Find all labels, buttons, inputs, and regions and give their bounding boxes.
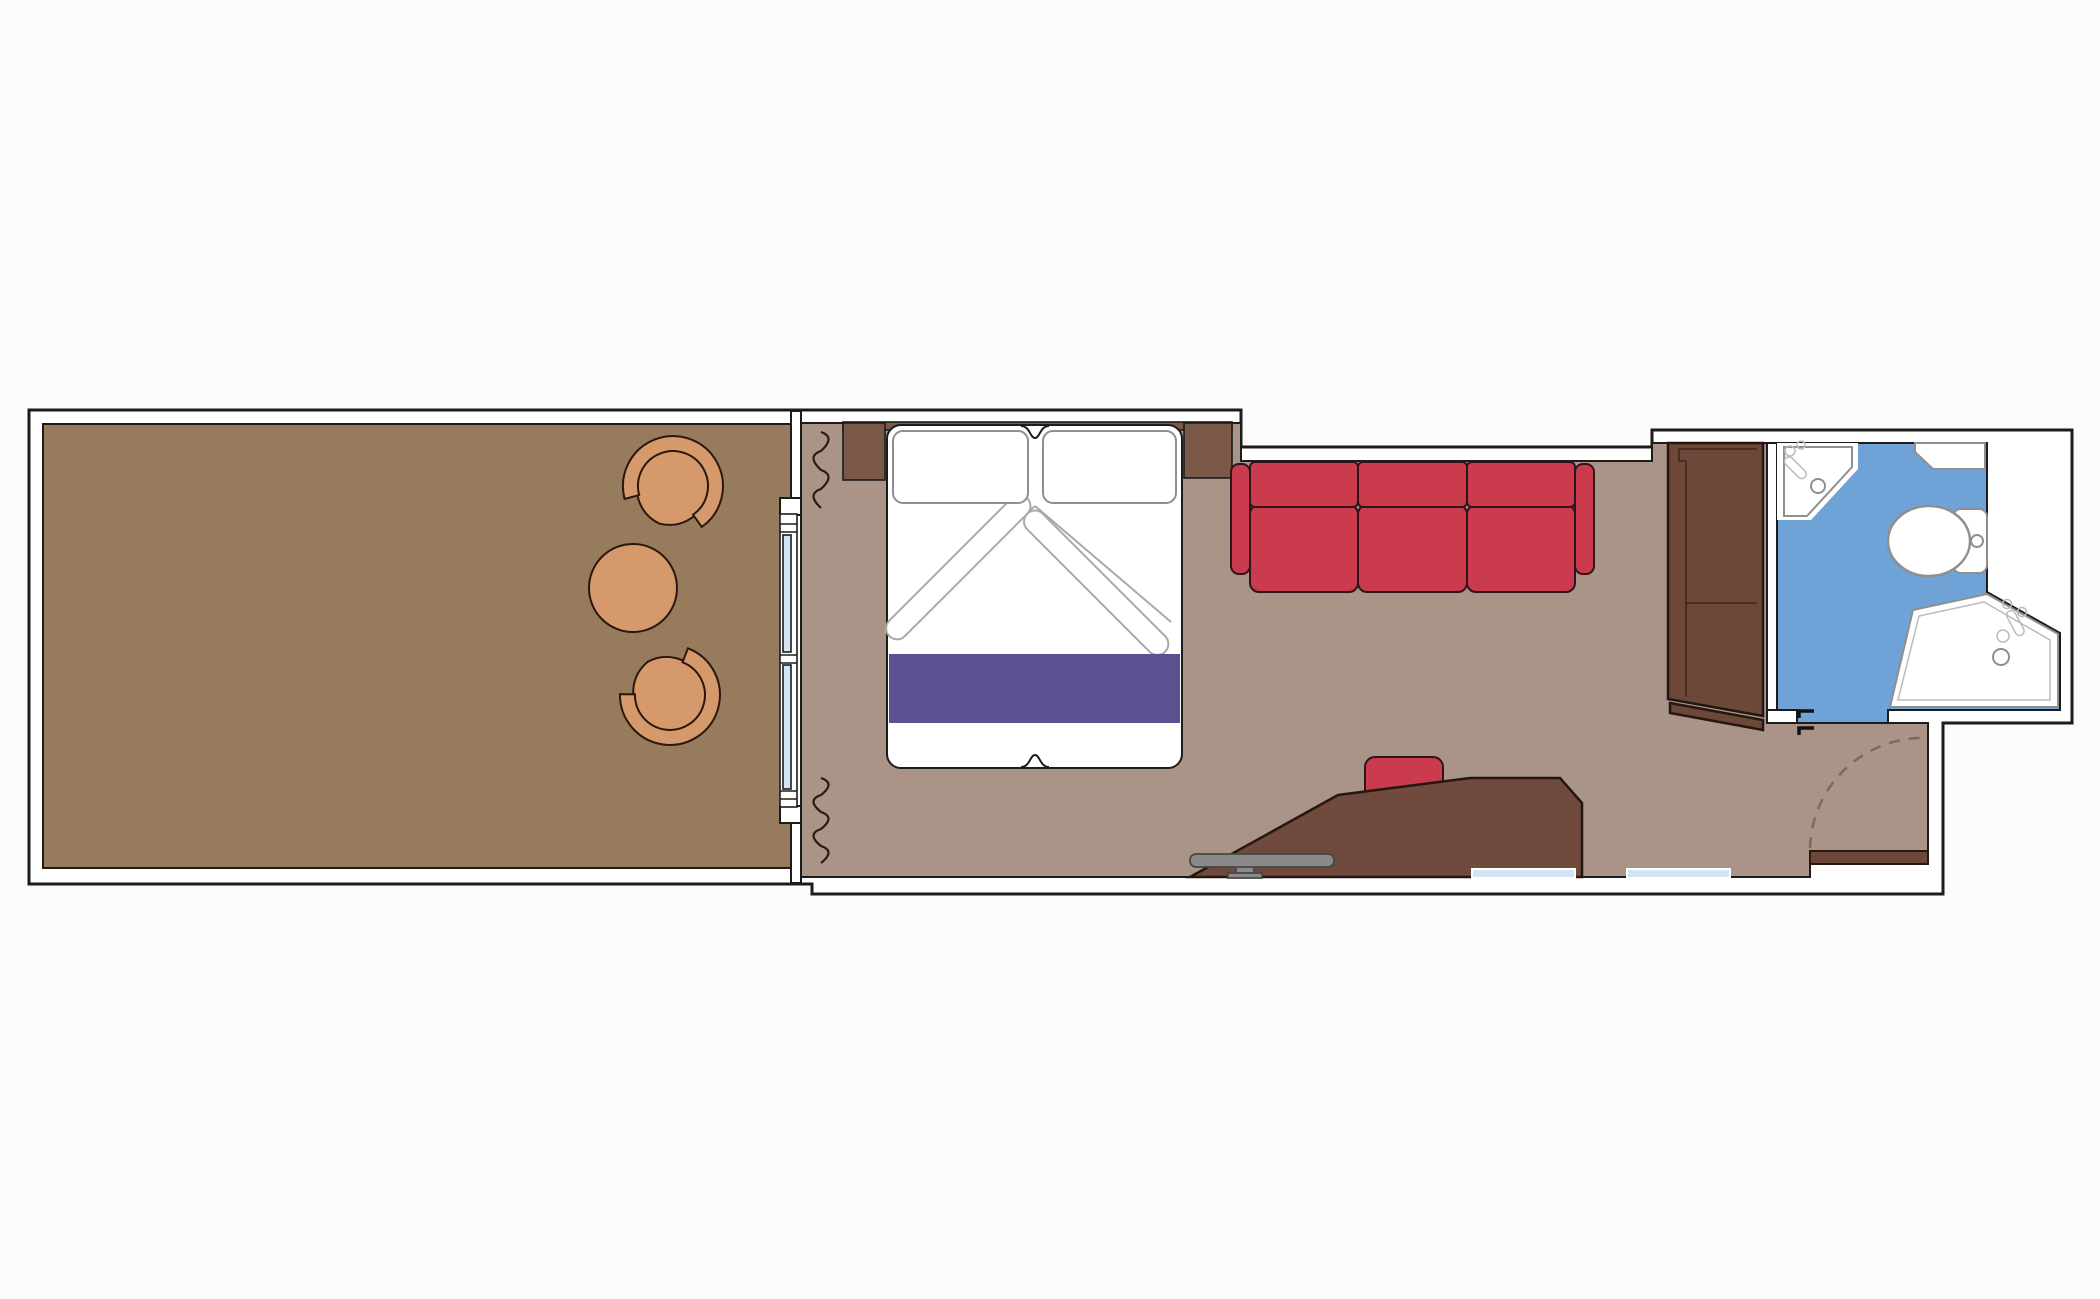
sofa-back-cushion xyxy=(1358,462,1467,507)
wardrobe-body xyxy=(1668,443,1763,716)
bed-runner xyxy=(889,654,1180,723)
sofa-back-cushion xyxy=(1250,462,1358,507)
sofa-back-cushion xyxy=(1467,462,1575,507)
sofa xyxy=(1231,462,1594,592)
sofa-armrest-right xyxy=(1575,464,1594,574)
stool-base xyxy=(1228,873,1262,878)
nightstand-left xyxy=(843,423,885,480)
wardrobe xyxy=(1668,443,1763,730)
toilet xyxy=(1888,506,1987,576)
floor-strip xyxy=(1472,869,1575,878)
bathroom-left-wall xyxy=(1767,443,1777,710)
pillow-left xyxy=(893,431,1028,503)
entrance-door xyxy=(1810,851,1928,864)
sofa-armrest-left xyxy=(1231,464,1250,574)
glass-pane-lower xyxy=(783,665,791,789)
sofa-seat-cushion xyxy=(1250,505,1358,592)
stool-seat xyxy=(1190,854,1334,867)
floor-strip xyxy=(1627,869,1730,878)
partition-wall-top xyxy=(791,411,801,500)
toilet-bowl xyxy=(1888,506,1970,576)
glass-pane-upper xyxy=(783,535,791,652)
nightstand-right xyxy=(1184,423,1232,478)
sofa-seat-cushion xyxy=(1467,505,1575,592)
floor-plan xyxy=(0,0,2100,1299)
balcony-table xyxy=(589,544,677,632)
window-jamb-bottom xyxy=(780,806,801,823)
double-bed xyxy=(882,425,1182,768)
partition-wall-bottom xyxy=(791,823,801,883)
window-jamb-top xyxy=(780,498,801,515)
sofa-seat-cushion xyxy=(1358,505,1467,592)
pillow-right xyxy=(1043,431,1176,503)
floor-plan-page xyxy=(0,0,2100,1299)
